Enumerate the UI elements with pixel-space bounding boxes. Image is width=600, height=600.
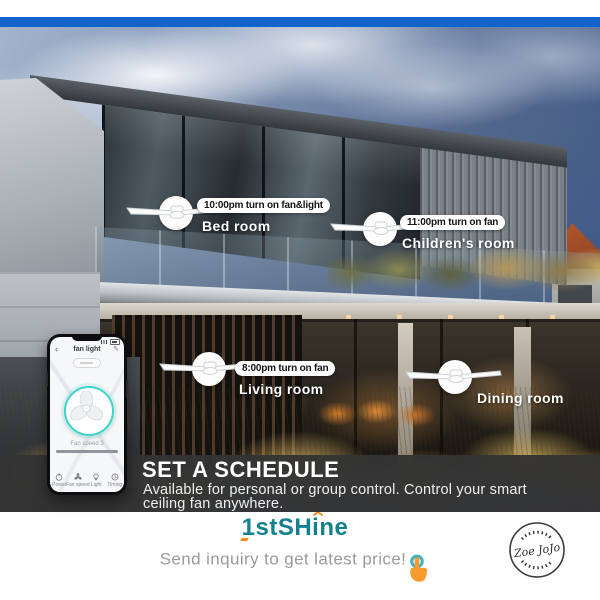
- power-icon: [55, 473, 63, 481]
- battery-icon: [110, 339, 120, 345]
- brand-accent: [240, 538, 249, 541]
- clock-icon: [111, 473, 119, 481]
- ceiling-fan-icon: [359, 208, 399, 248]
- fan-speed-label: Fan speed 3: [50, 441, 124, 447]
- footer: 1stSHine Send inquiry to get latest pric…: [95, 514, 495, 576]
- schedule-pill: 8:00pm turn on fan: [235, 361, 335, 376]
- ceiling-fan-icon: [188, 348, 228, 388]
- nav-timing[interactable]: Timing: [106, 473, 124, 488]
- fan-icon: [74, 473, 82, 481]
- status-bar: [101, 339, 120, 345]
- banner-description-line2: ceiling fan anywhere.: [143, 496, 283, 512]
- top-blue-stripe: [0, 17, 600, 27]
- fan-blades-icon: [69, 391, 104, 426]
- promo-image: 10:00pm turn on fan&light Bed room 11:00…: [0, 0, 600, 600]
- fan-dial[interactable]: [64, 386, 114, 436]
- zoejojo-stamp: Zoe JoJo: [506, 519, 568, 581]
- brand-logo: 1stSHine: [242, 514, 349, 542]
- phone-power-button: [126, 380, 128, 398]
- nav-light[interactable]: Light: [87, 473, 105, 488]
- brand-text: 1stSHine: [242, 514, 349, 541]
- inquiry-cta[interactable]: Send inquiry to get latest price!: [95, 544, 495, 576]
- device-pill-button[interactable]: [73, 358, 101, 368]
- fan-speed-slider[interactable]: [56, 450, 118, 453]
- ceiling-fan-icon: [434, 356, 474, 396]
- room-label: Bed room: [202, 218, 271, 234]
- phone-notch: [72, 334, 102, 341]
- phone-screen: ‹ fan light ✎ Fan speed 3: [50, 337, 124, 492]
- room-label: Living room: [239, 381, 324, 397]
- ceiling-fan-icon: [155, 192, 195, 232]
- nav-fan-speed[interactable]: Fan speed: [69, 473, 87, 488]
- inquiry-text: Send inquiry to get latest price!: [160, 549, 407, 568]
- signal-icon: [101, 340, 108, 344]
- phone-volume-button: [46, 372, 48, 386]
- banner-title: SET A SCHEDULE: [142, 457, 339, 483]
- room-label: Dining room: [477, 390, 564, 406]
- schedule-pill: 11:00pm turn on fan: [400, 215, 505, 230]
- phone-nav-bar: Power Fan speed Light Timing: [50, 473, 124, 488]
- bulb-icon: [92, 473, 100, 481]
- room-label: Children's room: [402, 235, 515, 251]
- edit-icon[interactable]: ✎: [113, 346, 119, 354]
- tap-hand-icon: [404, 553, 430, 585]
- phone-mockup: ‹ fan light ✎ Fan speed 3: [47, 334, 127, 495]
- schedule-pill: 10:00pm turn on fan&light: [197, 198, 330, 213]
